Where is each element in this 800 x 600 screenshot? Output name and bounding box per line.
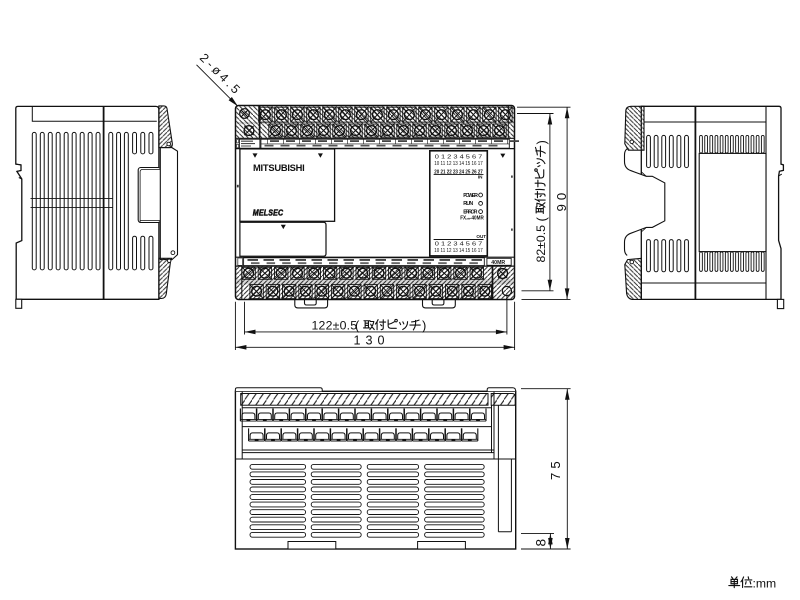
svg-text:MITSUBISHI: MITSUBISHI [253, 162, 305, 173]
svg-text:MELSEC: MELSEC [253, 209, 284, 218]
svg-text:RUN: RUN [463, 201, 473, 207]
svg-text:POWER: POWER [463, 193, 478, 199]
svg-text:FX₂ₙ-40MR: FX₂ₙ-40MR [460, 216, 484, 222]
svg-text:130: 130 [354, 334, 390, 348]
svg-text:OUT: OUT [476, 234, 486, 239]
svg-text:40MR: 40MR [491, 260, 505, 266]
svg-text:75: 75 [548, 457, 563, 480]
svg-text:2-ø4.5: 2-ø4.5 [197, 51, 245, 99]
svg-text:IN: IN [478, 175, 483, 180]
svg-text:0 1 2 3 4 5 6 7: 0 1 2 3 4 5 6 7 [435, 154, 483, 160]
svg-text:10 11 12 13 14 15 16 17: 10 11 12 13 14 15 16 17 [434, 161, 483, 167]
svg-text:): ) [422, 318, 426, 333]
svg-text:(: ( [534, 217, 549, 222]
svg-text:90: 90 [554, 189, 569, 212]
svg-text:10 11 12 13 14 15 16 17: 10 11 12 13 14 15 16 17 [434, 248, 483, 254]
svg-text:(: ( [355, 318, 360, 333]
svg-text:122±0.5: 122±0.5 [312, 318, 358, 332]
svg-text:8: 8 [534, 539, 549, 547]
svg-text:0 1 2 3 4 5 6 7: 0 1 2 3 4 5 6 7 [435, 241, 483, 247]
svg-text:): ) [534, 140, 549, 144]
svg-text:ERROR: ERROR [463, 209, 477, 215]
svg-text:82±0.5: 82±0.5 [534, 225, 548, 263]
svg-text::mm: :mm [753, 577, 777, 591]
